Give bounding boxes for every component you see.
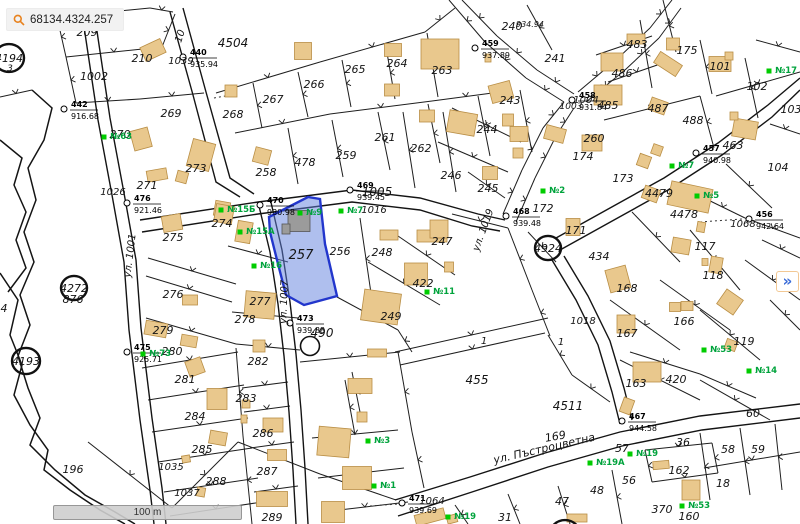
svg-text:№19А: №19А [596, 458, 625, 468]
svg-text:№73: №73 [149, 349, 171, 359]
svg-text:457: 457 [703, 144, 720, 153]
svg-text:287: 287 [257, 465, 278, 478]
svg-text:117: 117 [695, 240, 716, 253]
svg-text:1018: 1018 [570, 316, 595, 327]
svg-text:243: 243 [500, 94, 521, 107]
svg-text:171: 171 [566, 224, 587, 237]
svg-text:916.68: 916.68 [71, 112, 99, 121]
svg-text:№7: №7 [678, 161, 694, 171]
svg-text:269: 269 [161, 107, 182, 120]
svg-text:490: 490 [311, 326, 334, 340]
svg-text:257: 257 [289, 248, 315, 263]
map-canvas[interactable]: 442916.68476921.46475925.71470930.984739… [0, 0, 800, 524]
svg-text:1037: 1037 [174, 488, 200, 499]
svg-text:470: 470 [267, 196, 284, 205]
svg-text:247: 247 [432, 235, 453, 248]
svg-text:281: 281 [175, 373, 196, 386]
scale-label: 100 m [134, 507, 162, 518]
svg-text:103: 103 [781, 103, 800, 116]
svg-text:ул. 1007: ул. 1007 [278, 279, 291, 325]
svg-text:1: 1 [481, 336, 487, 347]
svg-text:4924: 4924 [534, 242, 562, 255]
svg-text:№5: №5 [703, 191, 719, 201]
svg-text:263: 263 [432, 64, 453, 77]
svg-text:289: 289 [262, 511, 283, 524]
svg-text:285: 285 [192, 443, 213, 456]
svg-text:937.89: 937.89 [482, 51, 510, 60]
svg-text:456: 456 [756, 210, 773, 219]
svg-text:№1: №1 [380, 481, 396, 491]
svg-text:468: 468 [513, 207, 530, 216]
search-icon [13, 14, 25, 26]
svg-text:1039: 1039 [168, 56, 193, 67]
svg-text:422: 422 [413, 277, 434, 290]
svg-text:259: 259 [336, 149, 357, 162]
svg-text:4504: 4504 [218, 36, 249, 50]
svg-text:168: 168 [617, 282, 638, 295]
svg-text:278: 278 [235, 313, 256, 326]
svg-text:283: 283 [236, 392, 257, 405]
svg-text:476: 476 [134, 194, 151, 203]
svg-text:261: 261 [375, 131, 396, 144]
svg-text:256: 256 [330, 245, 351, 258]
svg-text:467: 467 [629, 412, 646, 421]
svg-text:1064: 1064 [419, 496, 444, 507]
svg-text:939.69: 939.69 [409, 506, 437, 515]
svg-text:№11: №11 [433, 287, 455, 297]
svg-text:1005: 1005 [362, 185, 393, 199]
svg-text:485: 485 [598, 99, 619, 112]
svg-text:166: 166 [674, 315, 695, 328]
svg-text:241: 241 [545, 52, 566, 65]
svg-text:455: 455 [466, 373, 489, 387]
svg-text:104: 104 [768, 161, 789, 174]
svg-text:№2: №2 [549, 186, 565, 196]
svg-text:3: 3 [7, 64, 13, 74]
svg-text:279: 279 [153, 324, 174, 337]
svg-text:1004: 1004 [573, 95, 598, 106]
chevron-right-icon: » [783, 274, 793, 289]
svg-text:№14: №14 [755, 366, 777, 376]
svg-text:№9: №9 [306, 208, 322, 218]
svg-text:210: 210 [132, 52, 153, 65]
svg-text:266: 266 [304, 78, 325, 91]
search-box[interactable] [6, 8, 124, 31]
svg-text:118: 118 [703, 269, 724, 282]
svg-text:31: 31 [498, 511, 512, 524]
svg-text:459: 459 [482, 39, 499, 48]
svg-text:249: 249 [381, 310, 402, 323]
svg-text:1026: 1026 [100, 187, 125, 198]
svg-text:1035: 1035 [158, 462, 183, 473]
svg-text:264: 264 [387, 57, 408, 70]
svg-text:160: 160 [679, 510, 700, 523]
svg-text:№17: №17 [775, 66, 797, 76]
svg-text:286: 286 [253, 427, 274, 440]
svg-text:420: 420 [666, 373, 687, 386]
svg-text:№19: №19 [636, 449, 658, 459]
svg-text:59: 59 [751, 443, 765, 456]
svg-text:248: 248 [372, 246, 393, 259]
svg-text:4193: 4193 [12, 355, 40, 368]
svg-text:№15А: №15А [246, 227, 275, 237]
svg-text:56: 56 [622, 474, 636, 487]
selected-parcel-label: 257 [289, 248, 315, 263]
svg-text:10: 10 [173, 28, 187, 44]
svg-text:276: 276 [163, 288, 184, 301]
svg-text:274: 274 [212, 217, 233, 230]
svg-text:267: 267 [263, 93, 284, 106]
expand-panel-button[interactable]: » [776, 271, 799, 292]
svg-text:284: 284 [185, 410, 206, 423]
svg-text:172: 172 [533, 202, 554, 215]
svg-text:265: 265 [345, 63, 366, 76]
svg-text:370: 370 [652, 503, 673, 516]
svg-text:483: 483 [627, 38, 648, 51]
terrain-lines [0, 90, 135, 524]
svg-text:246: 246 [441, 169, 462, 182]
svg-text:№63: №63 [110, 132, 132, 142]
svg-text:60: 60 [746, 407, 760, 420]
svg-text:939.48: 939.48 [513, 219, 541, 228]
svg-text:934.94: 934.94 [516, 20, 544, 29]
svg-text:487: 487 [648, 102, 669, 115]
svg-text:260: 260 [584, 132, 605, 145]
svg-text:288: 288 [206, 475, 227, 488]
svg-text:102: 102 [747, 80, 768, 93]
svg-text:944.58: 944.58 [629, 424, 657, 433]
svg-text:№15Б: №15Б [227, 205, 256, 215]
svg-text:№16: №16 [260, 261, 282, 271]
svg-text:442: 442 [71, 100, 88, 109]
svg-text:№19: №19 [454, 512, 476, 522]
svg-text:930.98: 930.98 [267, 208, 295, 217]
svg-text:282: 282 [248, 355, 269, 368]
svg-text:245: 245 [478, 182, 499, 195]
svg-text:101: 101 [710, 60, 731, 73]
svg-text:18: 18 [716, 477, 730, 490]
svg-text:1: 1 [558, 337, 564, 348]
svg-text:488: 488 [683, 114, 704, 127]
svg-text:№53: №53 [688, 501, 710, 511]
svg-text:478: 478 [295, 156, 316, 169]
svg-text:36: 36 [676, 436, 690, 449]
svg-text:1068: 1068 [730, 219, 755, 230]
svg-text:921.46: 921.46 [134, 206, 162, 215]
svg-text:244: 244 [477, 123, 498, 136]
svg-text:57: 57 [615, 442, 629, 455]
svg-text:48: 48 [590, 484, 604, 497]
svg-text:№7: №7 [347, 206, 363, 216]
map-viewer: 442916.68476921.46475925.71470930.984739… [0, 0, 800, 524]
svg-text:175: 175 [677, 44, 698, 57]
svg-text:473: 473 [297, 314, 314, 323]
svg-text:ул. 1019: ул. 1019 [471, 208, 497, 254]
svg-text:ул. 1001: ул. 1001 [122, 233, 138, 279]
svg-text:271: 271 [137, 179, 158, 192]
svg-text:№3: №3 [374, 436, 390, 446]
svg-text:167: 167 [617, 327, 638, 340]
svg-text:4478: 4478 [670, 208, 698, 221]
svg-text:940.98: 940.98 [703, 156, 731, 165]
svg-text:876: 876 [63, 293, 84, 306]
svg-text:1016: 1016 [361, 205, 386, 216]
search-input[interactable] [30, 14, 116, 26]
svg-text:275: 275 [163, 231, 184, 244]
svg-text:273: 273 [186, 162, 207, 175]
svg-text:434: 434 [589, 250, 610, 263]
svg-text:4479: 4479 [645, 187, 673, 200]
svg-text:942.64: 942.64 [756, 222, 784, 231]
svg-text:277: 277 [250, 295, 271, 308]
svg-text:4: 4 [1, 302, 8, 315]
svg-text:№53: №53 [710, 345, 732, 355]
svg-text:58: 58 [721, 443, 735, 456]
svg-text:174: 174 [573, 150, 594, 163]
scale-bar: 100 m [53, 505, 242, 520]
svg-text:463: 463 [723, 139, 744, 152]
svg-text:486: 486 [612, 67, 633, 80]
svg-text:1002: 1002 [80, 70, 108, 83]
svg-text:262: 262 [411, 142, 432, 155]
svg-text:4511: 4511 [553, 399, 584, 413]
svg-text:163: 163 [626, 377, 647, 390]
svg-text:268: 268 [223, 108, 244, 121]
svg-text:47: 47 [555, 495, 569, 508]
svg-text:258: 258 [256, 166, 277, 179]
svg-text:196: 196 [63, 463, 84, 476]
svg-text:162: 162 [669, 464, 690, 477]
parcel-number-labels: 2091002210450426927027127327427527627727… [1, 20, 800, 524]
svg-text:173: 173 [613, 172, 634, 185]
svg-text:935.94: 935.94 [190, 60, 218, 69]
svg-text:119: 119 [734, 335, 755, 348]
